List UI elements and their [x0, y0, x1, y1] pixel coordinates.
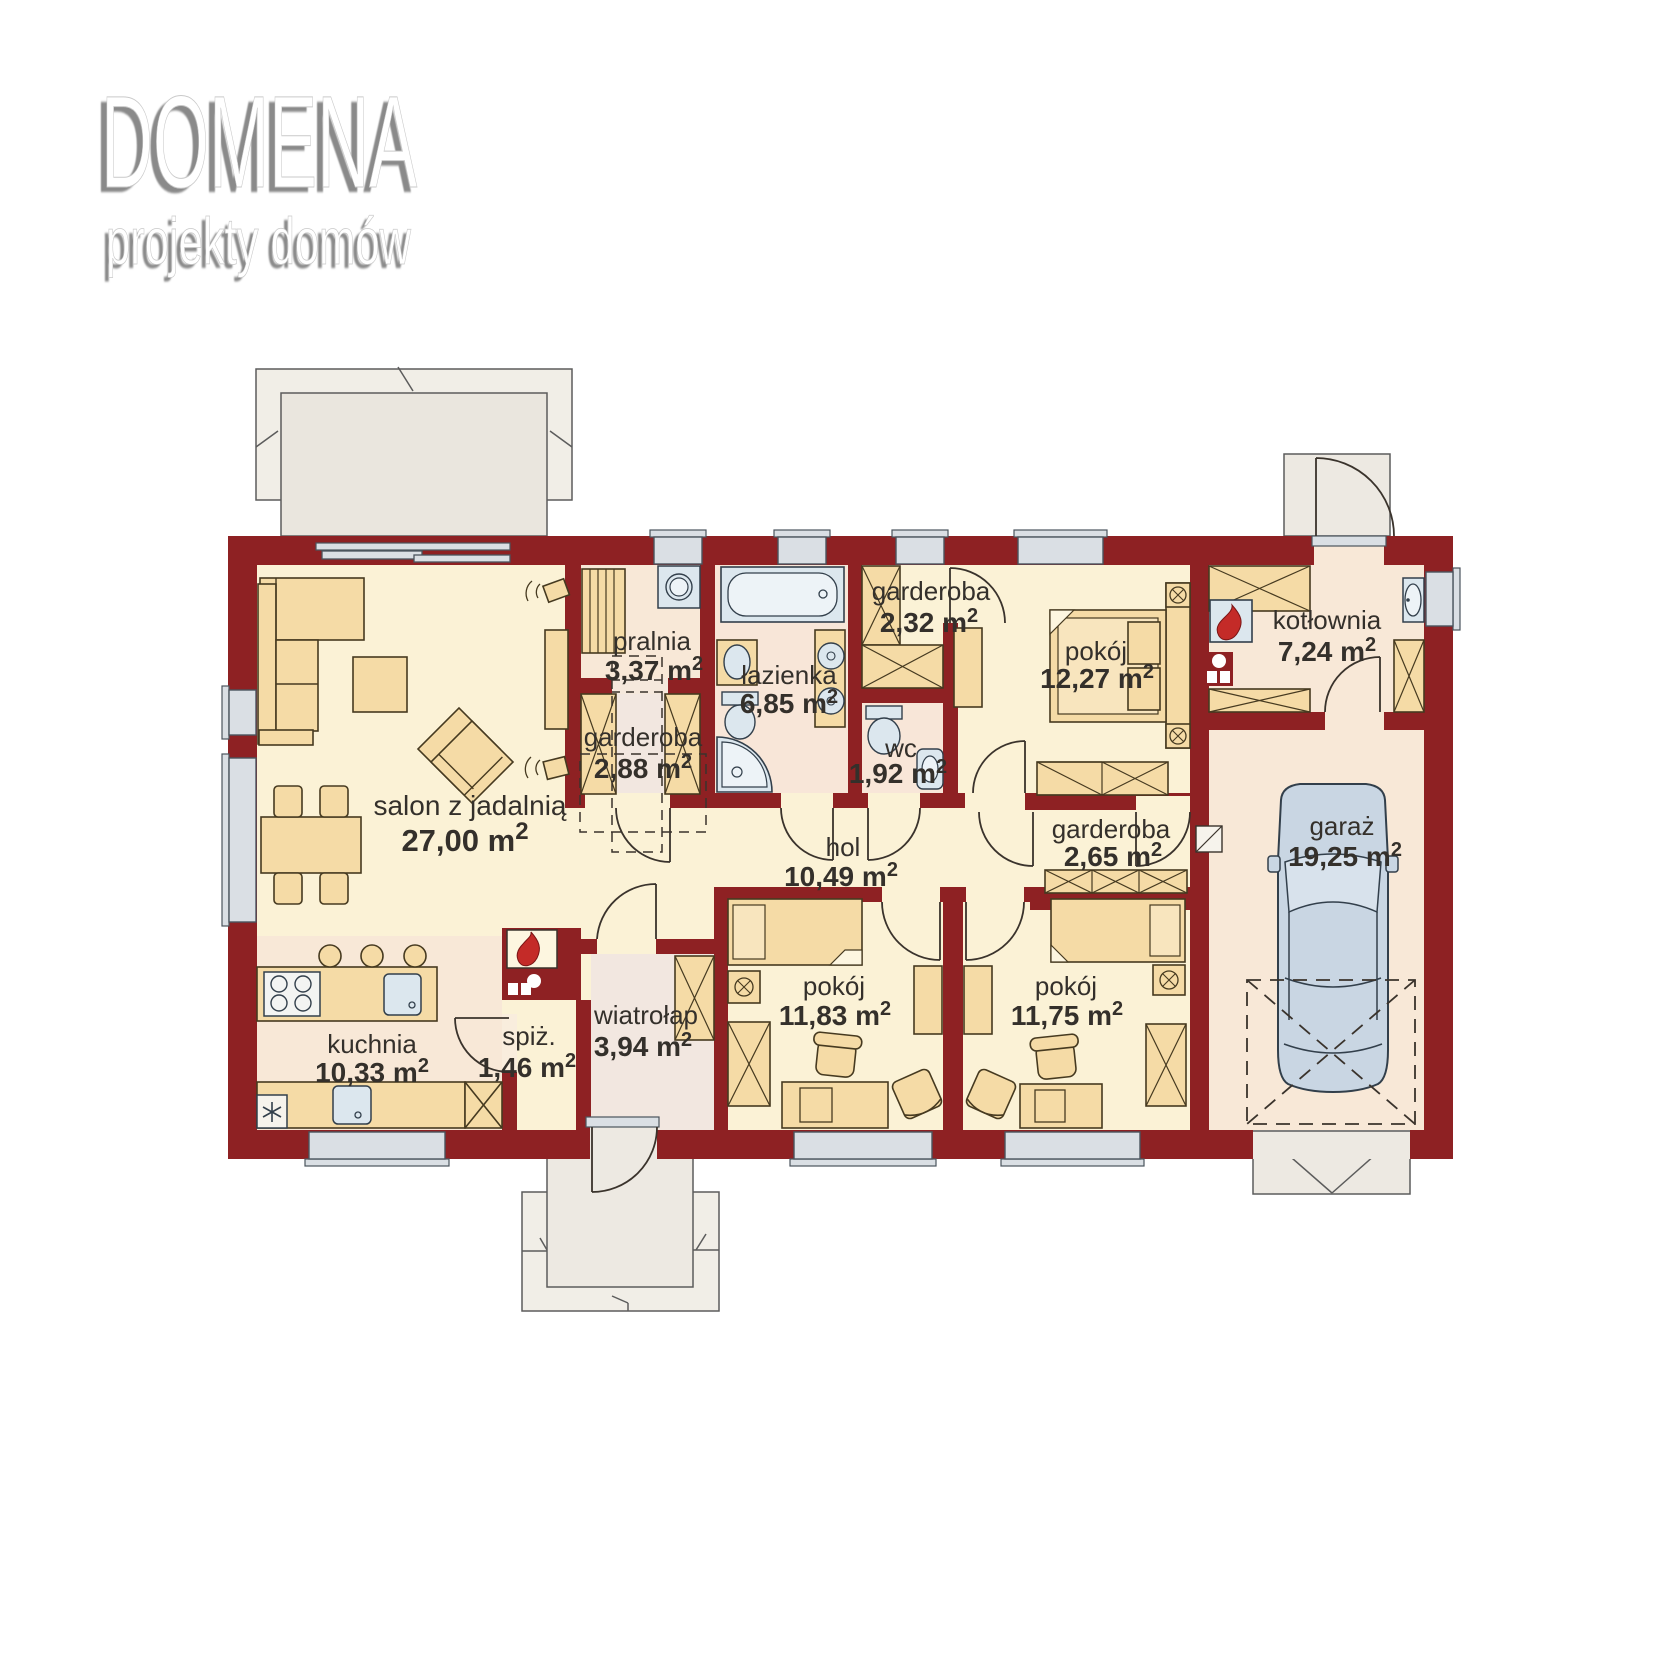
svg-text:11,75 m2: 11,75 m2 — [1011, 998, 1123, 1031]
svg-text:10,33 m2: 10,33 m2 — [315, 1055, 429, 1088]
svg-text:DOMENA: DOMENA — [101, 69, 418, 215]
svg-text:6,85 m2: 6,85 m2 — [740, 686, 838, 719]
svg-text:27,00 m2: 27,00 m2 — [401, 818, 528, 858]
svg-text:12,27 m2: 12,27 m2 — [1040, 661, 1154, 694]
svg-text:wiatrołap: wiatrołap — [593, 1000, 698, 1030]
svg-text:garderoba: garderoba — [584, 722, 703, 752]
svg-text:2,88 m2: 2,88 m2 — [594, 751, 692, 784]
svg-text:2,65 m2: 2,65 m2 — [1064, 839, 1162, 872]
svg-text:2,32 m2: 2,32 m2 — [880, 605, 978, 638]
svg-text:projekty domów: projekty domów — [106, 204, 411, 278]
svg-text:pokój: pokój — [1065, 636, 1127, 666]
svg-text:pokój: pokój — [1035, 971, 1097, 1001]
svg-text:pralnia: pralnia — [613, 626, 692, 656]
svg-text:3,94 m2: 3,94 m2 — [594, 1029, 692, 1062]
svg-text:3,37 m2: 3,37 m2 — [605, 653, 703, 686]
svg-text:7,24 m2: 7,24 m2 — [1278, 634, 1376, 667]
svg-text:salon z jadalnią: salon z jadalnią — [373, 790, 566, 821]
svg-text:łazienka: łazienka — [741, 660, 837, 690]
svg-text:11,83 m2: 11,83 m2 — [779, 998, 891, 1031]
svg-text:1,46 m2: 1,46 m2 — [478, 1050, 576, 1083]
svg-text:10,49 m2: 10,49 m2 — [784, 859, 898, 892]
svg-text:kotłownia: kotłownia — [1273, 605, 1382, 635]
svg-text:pokój: pokój — [803, 971, 865, 1001]
svg-text:hol: hol — [826, 832, 861, 862]
svg-text:garaż: garaż — [1309, 811, 1374, 841]
svg-text:kuchnia: kuchnia — [327, 1029, 417, 1059]
svg-text:garderoba: garderoba — [872, 576, 991, 606]
svg-text:spiż.: spiż. — [502, 1021, 555, 1051]
svg-text:1,92 m2: 1,92 m2 — [849, 756, 947, 789]
svg-text:19,25 m2: 19,25 m2 — [1288, 839, 1402, 872]
